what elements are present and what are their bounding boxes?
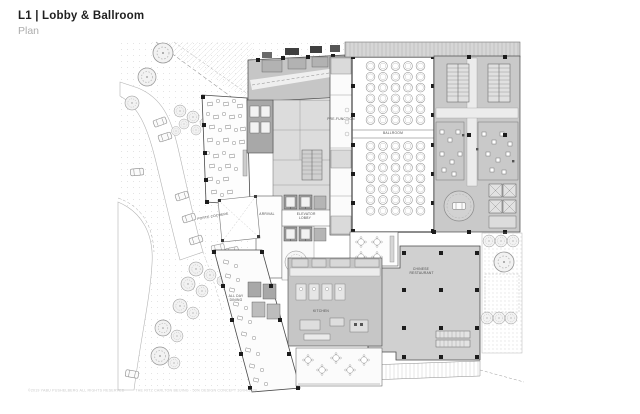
stair-north-2 bbox=[488, 64, 510, 102]
east-garden bbox=[481, 233, 522, 353]
footer-project: THE RITZ CARLTON BEIJING - 50% DESIGN CO… bbox=[135, 389, 257, 393]
porte-cochere-canopy bbox=[218, 195, 260, 242]
right-boh-block bbox=[432, 55, 520, 234]
south-dining-tables bbox=[296, 348, 382, 386]
floor-plan-drawing bbox=[0, 0, 640, 414]
kitchen-block bbox=[288, 258, 382, 346]
stair-core bbox=[302, 150, 322, 180]
floor-plan: BALLROOM PRE-FUNCTION ELEVATOR LOBBY ARR… bbox=[0, 0, 640, 414]
car-turntable bbox=[444, 191, 474, 221]
north-service-band bbox=[345, 42, 520, 57]
footer-copyright: ©2019 YABU PUSHELBERG ALL RIGHTS RESERVE… bbox=[28, 389, 125, 393]
pre-function-band bbox=[330, 57, 352, 235]
ballroom-area bbox=[351, 55, 435, 233]
drawing-footer: ©2019 YABU PUSHELBERG ALL RIGHTS RESERVE… bbox=[28, 389, 257, 393]
lobby-lounge-wing bbox=[201, 95, 250, 205]
stair-north-1 bbox=[447, 64, 469, 102]
